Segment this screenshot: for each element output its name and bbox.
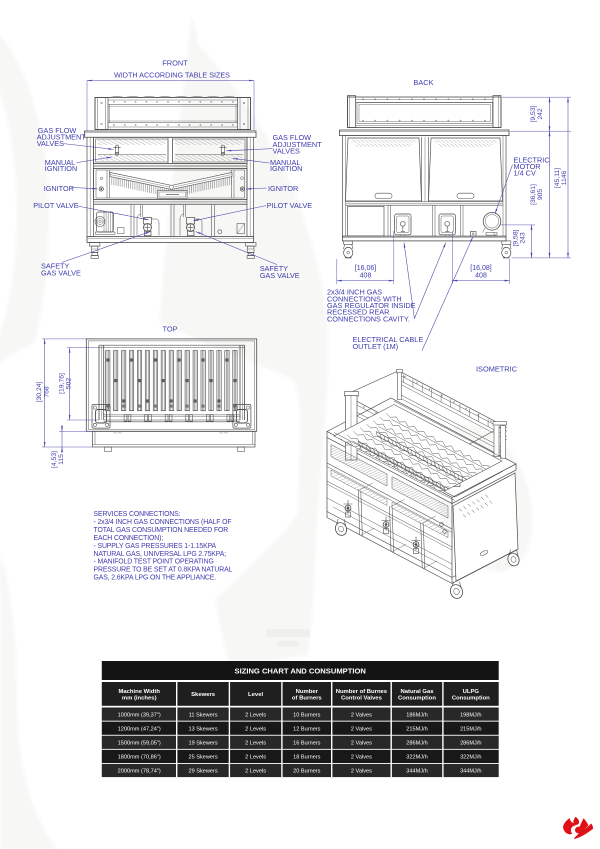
svg-text:2 Valves: 2 Valves	[351, 726, 372, 732]
svg-text:344MJ/h: 344MJ/h	[406, 769, 427, 775]
svg-text:2 Valves: 2 Valves	[351, 755, 372, 761]
svg-text:SERVICES CONNECTIONS:: SERVICES CONNECTIONS:	[94, 511, 181, 518]
svg-text:VALVES: VALVES	[37, 139, 64, 148]
svg-text:[9,58]: [9,58]	[512, 229, 519, 246]
svg-text:2 Levels: 2 Levels	[245, 769, 266, 775]
svg-text:198MJ/h: 198MJ/h	[460, 712, 481, 718]
svg-text:19 Skewers: 19 Skewers	[188, 741, 217, 747]
svg-text:408: 408	[475, 273, 487, 280]
svg-text:of Burners: of Burners	[292, 696, 323, 702]
svg-text:GAS VALVE: GAS VALVE	[260, 271, 300, 280]
svg-text:IGNITOR: IGNITOR	[44, 184, 74, 193]
svg-text:186MJ/h: 186MJ/h	[406, 712, 427, 718]
svg-text:344MJ/h: 344MJ/h	[460, 769, 481, 775]
svg-text:16 Burners: 16 Burners	[293, 741, 321, 747]
svg-text:18 Burners: 18 Burners	[293, 755, 321, 761]
svg-text:FRONT: FRONT	[162, 59, 188, 68]
svg-text:1146: 1146	[561, 170, 568, 185]
svg-text:mm (inches): mm (inches)	[122, 696, 157, 702]
svg-text:Natural Gas: Natural Gas	[400, 689, 434, 695]
svg-text:SIZING CHART AND CONSUMPTION: SIZING CHART AND CONSUMPTION	[235, 667, 366, 676]
svg-text:1000mm (39,37"): 1000mm (39,37")	[118, 712, 161, 718]
svg-text:20 Burners: 20 Burners	[293, 769, 321, 775]
svg-text:2 Levels: 2 Levels	[245, 726, 266, 732]
svg-text:115: 115	[58, 454, 65, 465]
svg-text:25 Skewers: 25 Skewers	[188, 755, 217, 761]
svg-text:2 Valves: 2 Valves	[351, 712, 372, 718]
svg-text:[19,76]: [19,76]	[58, 373, 65, 394]
svg-text:BACK: BACK	[413, 78, 433, 87]
svg-text:322MJ/h: 322MJ/h	[406, 755, 427, 761]
svg-text:2 Levels: 2 Levels	[245, 755, 266, 761]
svg-text:[16,08]: [16,08]	[470, 265, 491, 272]
svg-text:CONNECTIONS CAVITY.: CONNECTIONS CAVITY.	[327, 314, 410, 323]
svg-text:TOTAL GAS CONSUMPTION NEEDED F: TOTAL GAS CONSUMPTION NEEDED FOR	[94, 527, 229, 534]
svg-text:2000mm (78,74"): 2000mm (78,74")	[118, 769, 161, 775]
svg-text:Number of Burnes: Number of Burnes	[336, 689, 388, 695]
svg-text:ISOMETRIC: ISOMETRIC	[476, 364, 518, 373]
svg-text:VALVES: VALVES	[273, 146, 300, 155]
svg-text:Number: Number	[296, 689, 319, 695]
svg-text:215MJ/h: 215MJ/h	[406, 726, 427, 732]
svg-text:PILOT VALVE: PILOT VALVE	[33, 201, 79, 210]
svg-text:502: 502	[66, 378, 73, 390]
svg-text:11 Skewers: 11 Skewers	[189, 712, 218, 718]
svg-text:Level: Level	[248, 692, 263, 698]
svg-text:PRESSURE TO BE SET AT 0.8KPA N: PRESSURE TO BE SET AT 0.8KPA NATURAL	[94, 567, 233, 574]
svg-text:Consumption: Consumption	[398, 696, 436, 702]
svg-text:1/4 CV: 1/4 CV	[514, 169, 536, 178]
svg-text:Machine Width: Machine Width	[118, 689, 160, 695]
svg-text:Skewers: Skewers	[191, 692, 216, 698]
svg-text:1500mm (59,05"): 1500mm (59,05")	[118, 741, 161, 747]
svg-text:243: 243	[519, 232, 526, 244]
svg-text:[36,61]: [36,61]	[530, 184, 537, 205]
svg-text:IGNITION: IGNITION	[270, 164, 302, 173]
svg-text:286MJ/h: 286MJ/h	[460, 741, 481, 747]
svg-text:IGNITION: IGNITION	[45, 164, 77, 173]
svg-text:PILOT VALVE: PILOT VALVE	[267, 201, 313, 210]
svg-text:[45,11]: [45,11]	[554, 168, 561, 188]
svg-text:IGNITOR: IGNITOR	[268, 184, 298, 193]
svg-text:GAS, 2.6KPA LPG ON THE APPLIAN: GAS, 2.6KPA LPG ON THE APPLIANCE.	[94, 575, 217, 582]
svg-text:2 Valves: 2 Valves	[351, 769, 372, 775]
svg-text:905: 905	[537, 189, 544, 201]
svg-text:768: 768	[43, 386, 50, 398]
svg-text:2 Levels: 2 Levels	[245, 741, 266, 747]
svg-text:GAS VALVE: GAS VALVE	[41, 268, 81, 277]
svg-text:2 Valves: 2 Valves	[351, 741, 372, 747]
svg-text:[16,06]: [16,06]	[355, 265, 376, 272]
svg-text:Consumption: Consumption	[452, 696, 490, 702]
svg-text:OUTLET (1M): OUTLET (1M)	[353, 342, 399, 351]
svg-text:TOP: TOP	[162, 324, 177, 333]
svg-text:[4,53]: [4,53]	[51, 451, 58, 468]
svg-text:[9,53]: [9,53]	[530, 105, 537, 122]
svg-text:2 Levels: 2 Levels	[245, 712, 266, 718]
svg-text:Control Valves: Control Valves	[341, 696, 383, 702]
svg-text:- SUPPLY GAS PRESSURES 1-1.15K: - SUPPLY GAS PRESSURES 1-1.15KPA	[94, 543, 217, 550]
svg-text:- MANIFOLD TEST POINT OPERATIN: - MANIFOLD TEST POINT OPERATING	[94, 559, 214, 566]
svg-text:12 Burners: 12 Burners	[293, 726, 321, 732]
svg-text:ULPG: ULPG	[463, 689, 480, 695]
svg-text:1200mm (47,24"): 1200mm (47,24")	[118, 726, 161, 732]
svg-text:13 Skewers: 13 Skewers	[188, 726, 217, 732]
svg-text:1800mm (70,86"): 1800mm (70,86")	[118, 755, 161, 761]
svg-text:NATURAL GAS, UNIVERSAL LPG 2.7: NATURAL GAS, UNIVERSAL LPG 2.75KPA;	[94, 551, 227, 558]
svg-text:408: 408	[360, 273, 372, 280]
svg-text:WIDTH ACCORDING TABLE SIZES: WIDTH ACCORDING TABLE SIZES	[114, 71, 230, 80]
svg-text:EACH CONNECTION);: EACH CONNECTION);	[94, 535, 164, 542]
svg-text:10 Burners: 10 Burners	[293, 712, 321, 718]
svg-text:242: 242	[537, 108, 544, 120]
svg-text:29 Skewers: 29 Skewers	[188, 769, 217, 775]
svg-text:- 2x3/4 INCH GAS CONNECTIONS (: - 2x3/4 INCH GAS CONNECTIONS (HALF OF	[94, 519, 232, 526]
svg-text:322MJ/h: 322MJ/h	[460, 755, 481, 761]
svg-text:286MJ/h: 286MJ/h	[406, 741, 427, 747]
svg-text:[30,24]: [30,24]	[36, 382, 43, 403]
svg-text:215MJ/h: 215MJ/h	[460, 726, 481, 732]
